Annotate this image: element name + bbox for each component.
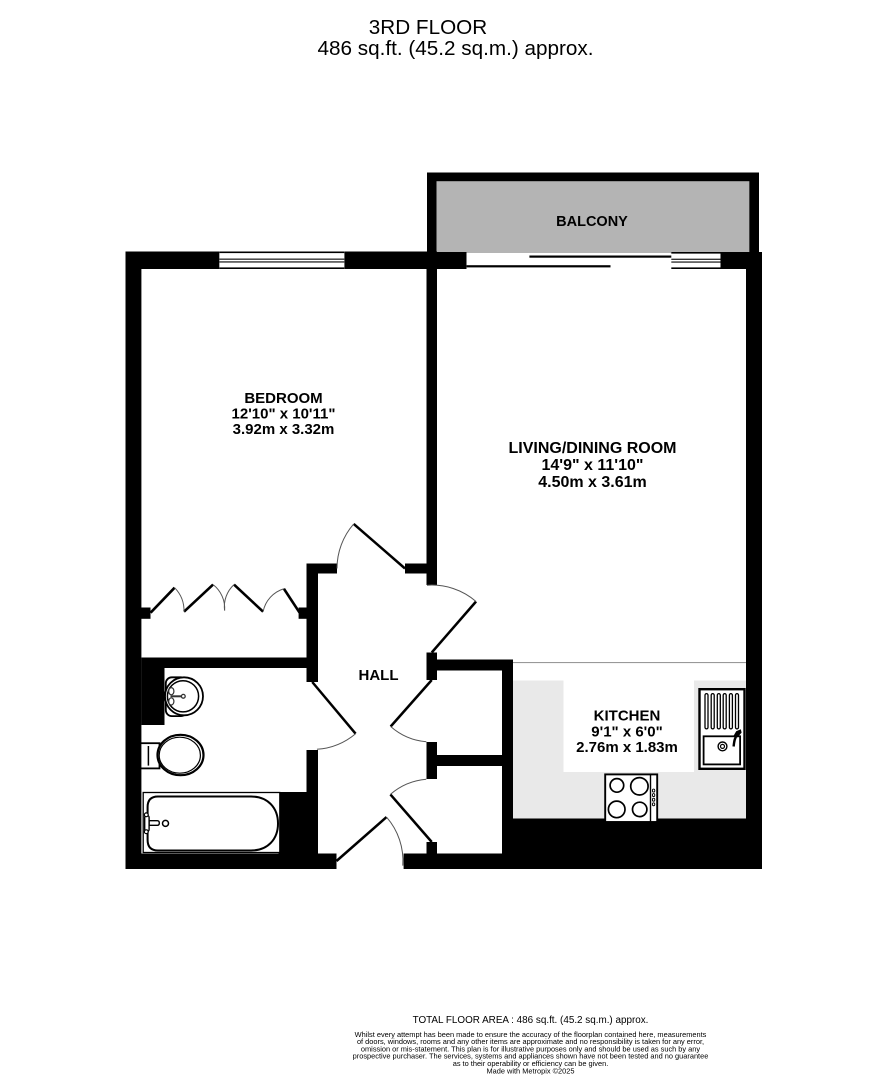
svg-text:LIVING/DINING ROOM: LIVING/DINING ROOM — [509, 440, 677, 457]
svg-text:14'9" x 11'10": 14'9" x 11'10" — [542, 457, 644, 474]
svg-text:12'10" x 10'11": 12'10" x 10'11" — [232, 405, 336, 422]
svg-text:KITCHEN: KITCHEN — [594, 708, 661, 725]
svg-text:Made with Metropix ©2025: Made with Metropix ©2025 — [486, 1066, 574, 1075]
svg-text:486 sq.ft. (45.2 sq.m.) approx: 486 sq.ft. (45.2 sq.m.) approx. — [318, 37, 594, 60]
svg-text:4.50m x 3.61m: 4.50m x 3.61m — [538, 474, 647, 491]
svg-text:BEDROOM: BEDROOM — [244, 390, 322, 407]
svg-text:BALCONY: BALCONY — [556, 214, 628, 230]
svg-text:3RD FLOOR: 3RD FLOOR — [369, 16, 487, 39]
svg-text:2.76m x 1.83m: 2.76m x 1.83m — [576, 739, 678, 756]
svg-text:TOTAL FLOOR AREA : 486 sq.ft.: TOTAL FLOOR AREA : 486 sq.ft. (45.2 sq.m… — [413, 1015, 649, 1026]
svg-text:HALL: HALL — [359, 667, 399, 684]
svg-text:9'1" x 6'0": 9'1" x 6'0" — [591, 724, 662, 741]
svg-text:3.92m x 3.32m: 3.92m x 3.32m — [233, 421, 335, 438]
